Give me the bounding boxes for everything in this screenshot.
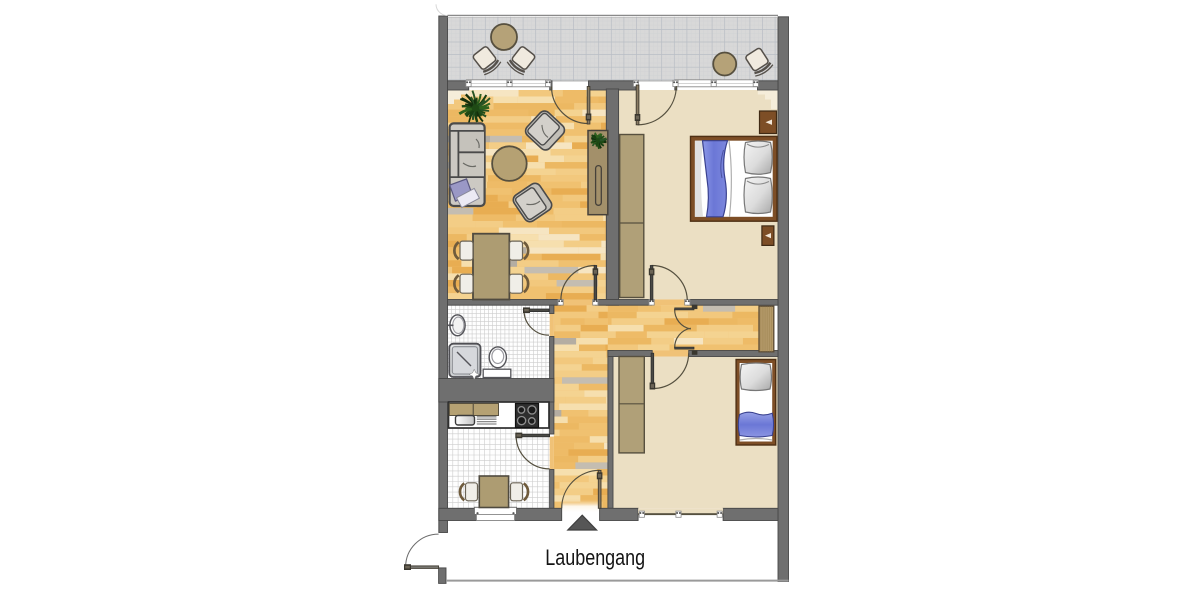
svg-text:Laubengang: Laubengang [545,546,645,570]
